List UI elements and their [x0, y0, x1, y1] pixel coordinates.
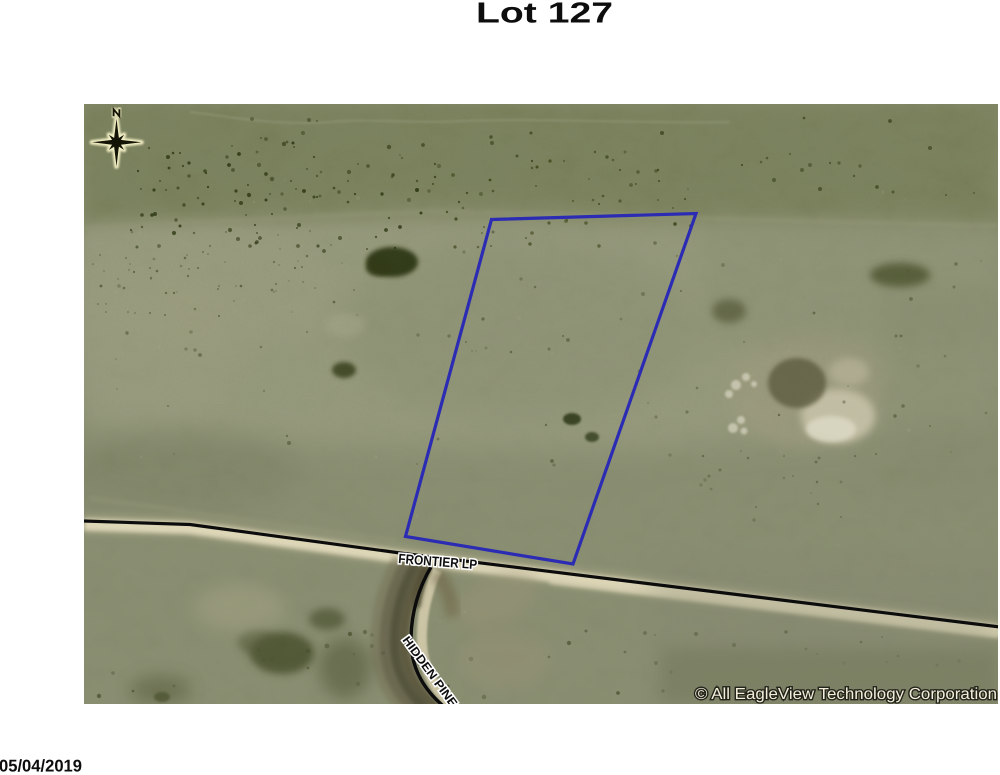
svg-text:05/04/2019: 05/04/2019 — [0, 757, 82, 775]
svg-text:© All EagleView Technology Cor: © All EagleView Technology Corporation — [695, 686, 997, 703]
svg-text:Lot 127: Lot 127 — [476, 0, 613, 30]
